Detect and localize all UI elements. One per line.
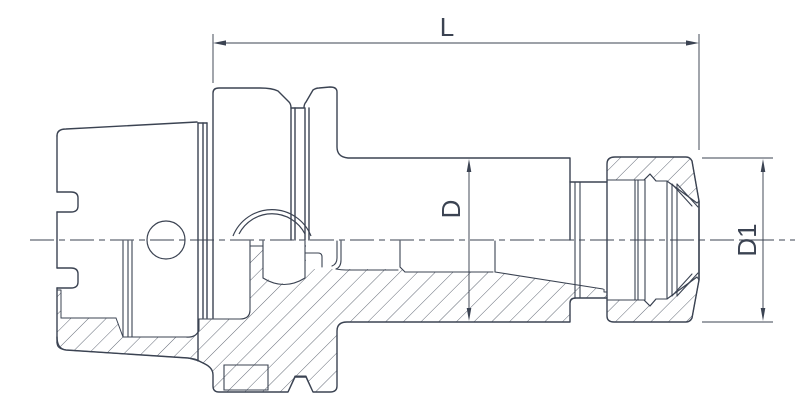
arrowhead-left bbox=[213, 40, 226, 45]
shank-outline bbox=[57, 122, 197, 136]
arrowhead-up bbox=[467, 159, 472, 172]
label-diameter-D: D bbox=[436, 200, 466, 219]
arrowhead-down bbox=[761, 308, 766, 321]
label-diameter-D1: D1 bbox=[732, 223, 762, 256]
collet-chuck-section-drawing: L D D1 bbox=[0, 0, 812, 417]
arrowhead-right bbox=[686, 40, 699, 45]
arrowhead-up bbox=[761, 159, 766, 172]
technical-drawing-canvas: L D D1 bbox=[0, 0, 812, 417]
flange-outline bbox=[213, 87, 570, 240]
label-length-L: L bbox=[440, 12, 454, 42]
dimension-L bbox=[213, 34, 699, 150]
